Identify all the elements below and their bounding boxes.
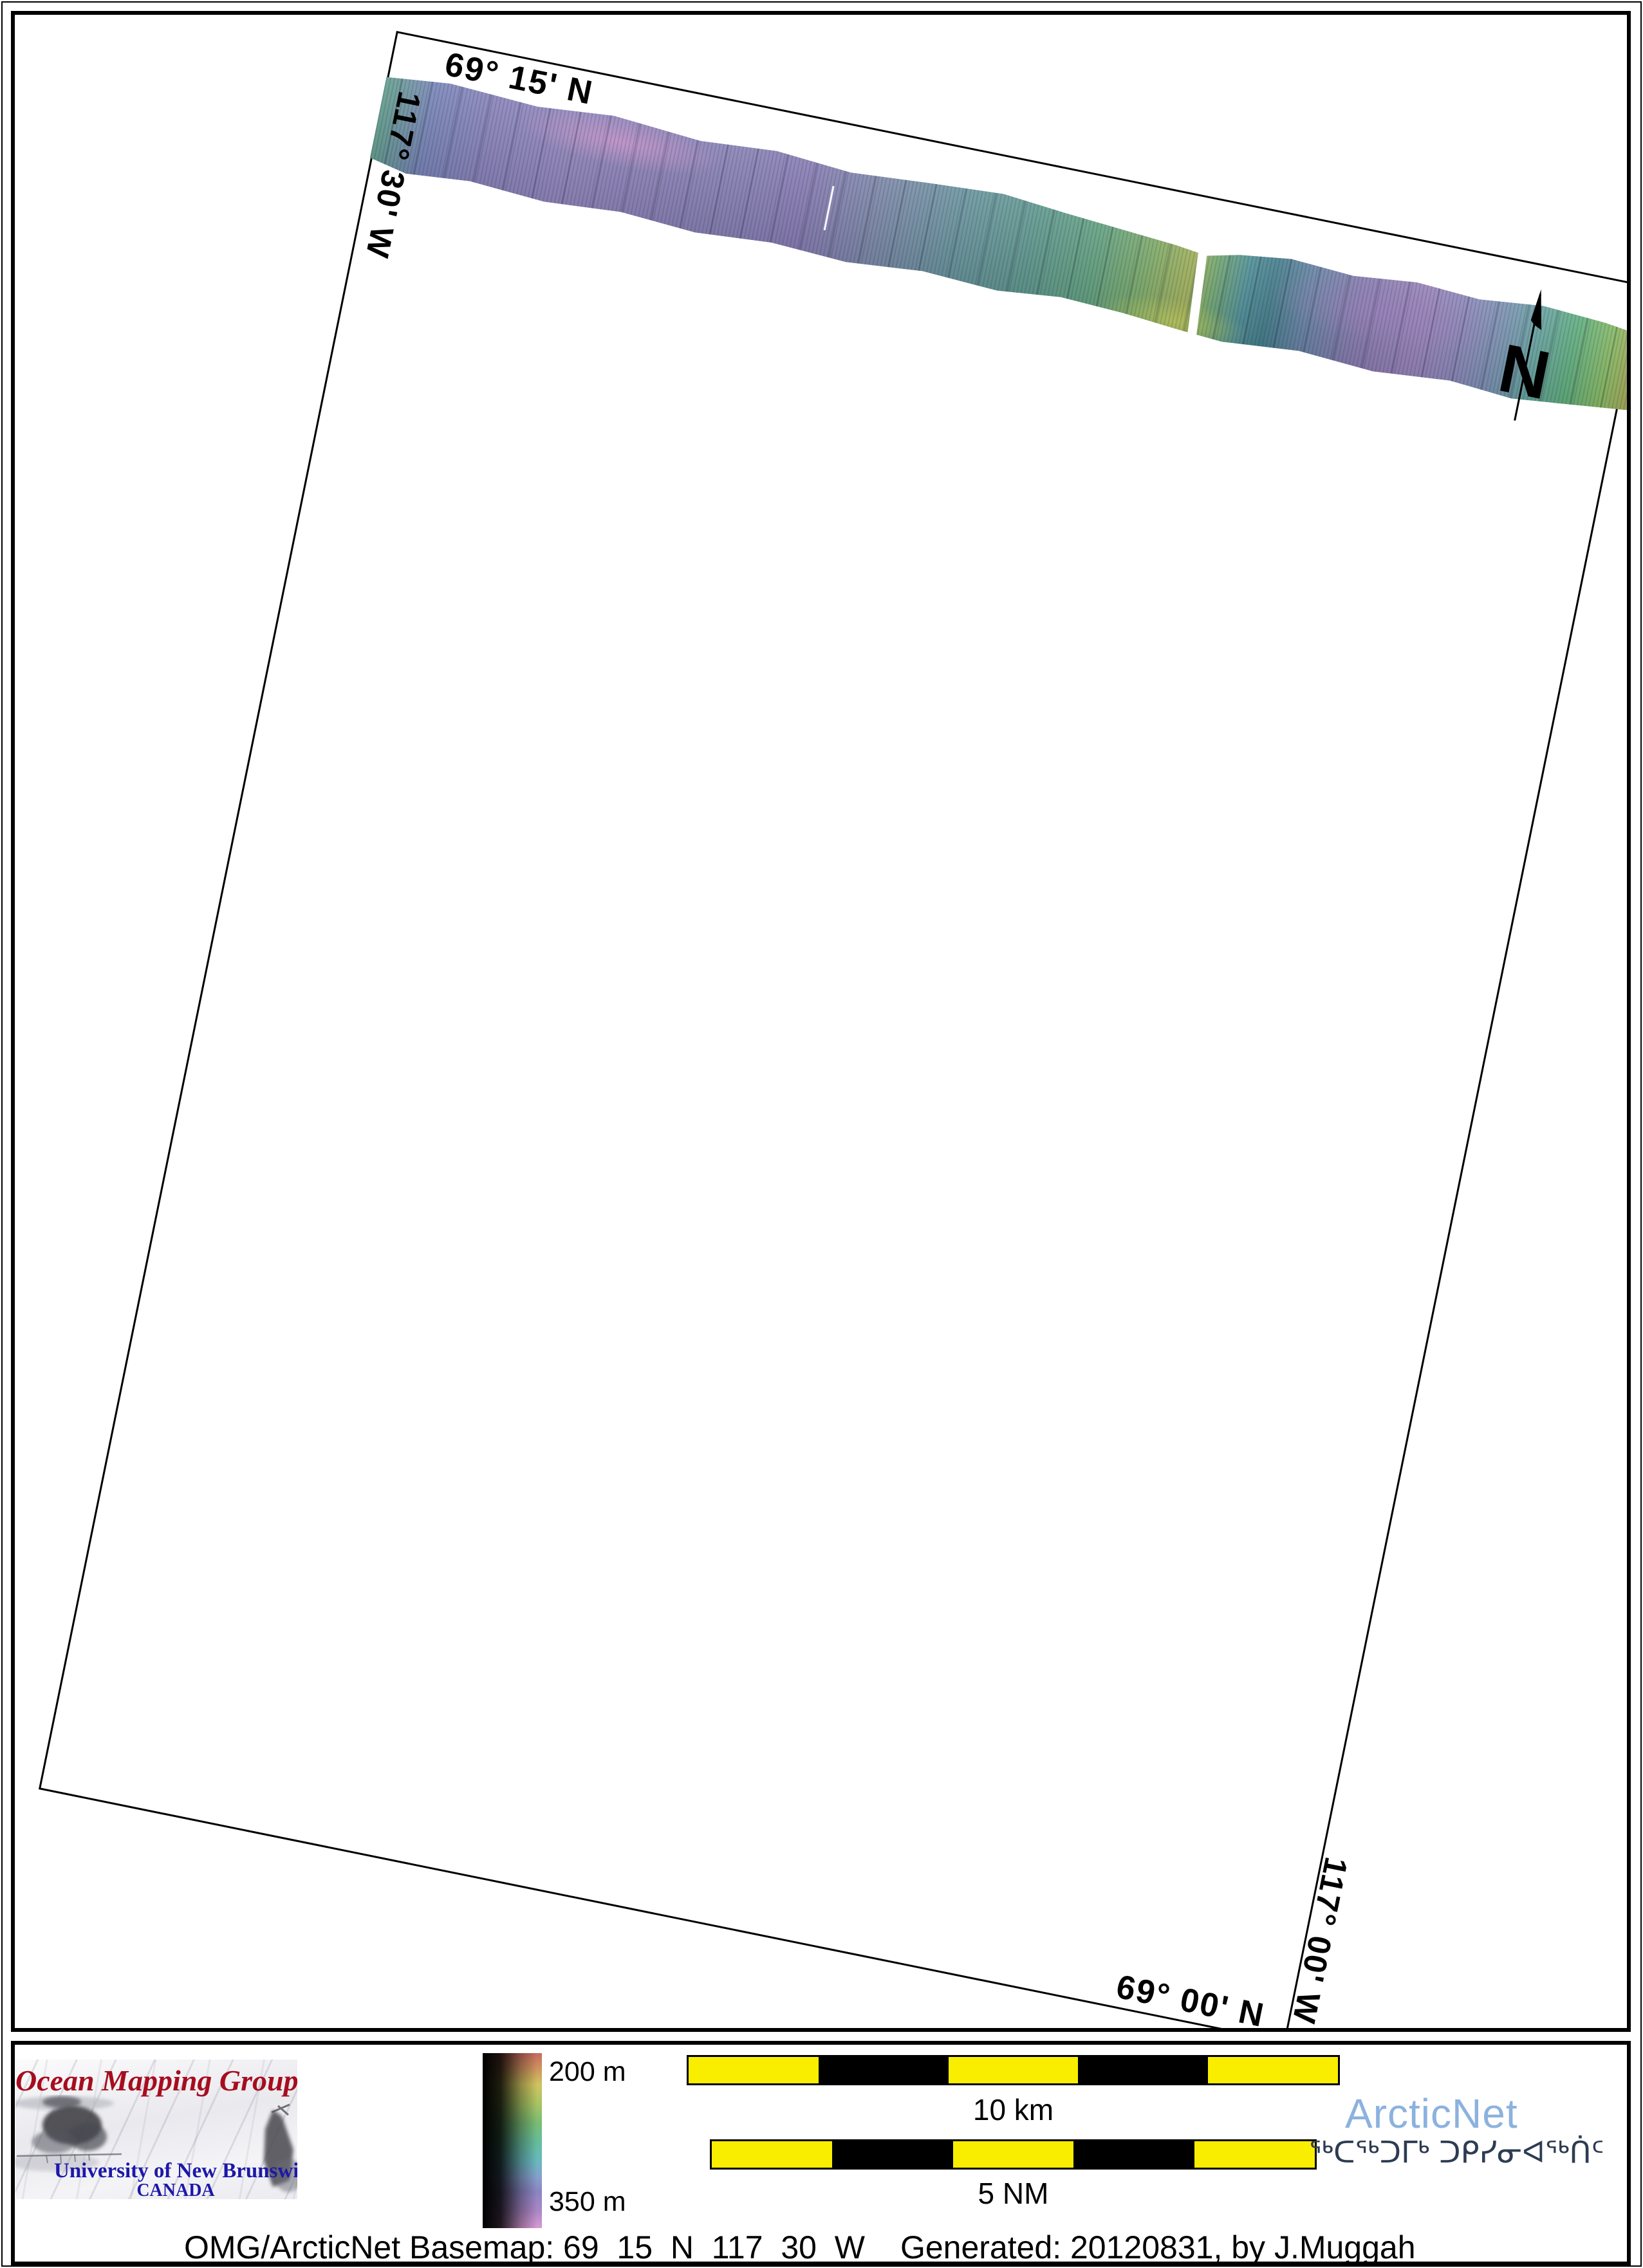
omg-country: CANADA (54, 2180, 297, 2199)
scalebar-segment (1208, 2057, 1338, 2083)
basemap-page: 69° 15' N 117° 30' W 69° 00' N 117° 00' … (0, 0, 1643, 2268)
generated-text: Generated: 20120831, by J.Muggah (900, 2229, 1416, 2265)
basemap-id-text: OMG/ArcticNet Basemap: 69_15_N_117_30_W (184, 2229, 865, 2265)
longitude-label-left: 117° 30' W (358, 88, 429, 261)
bathymetry-swath (367, 67, 1631, 426)
scalebar-nm (710, 2139, 1317, 2170)
omg-logo: Ocean Mapping Group University of New Br… (15, 2060, 297, 2199)
scalebar-segment (689, 2057, 819, 2083)
depth-colorbar (483, 2053, 542, 2228)
scalebar-segment (953, 2141, 1073, 2168)
map-frame: 69° 15' N 117° 30' W 69° 00' N 117° 00' … (39, 31, 1631, 2032)
scalebar-segment (1194, 2141, 1315, 2168)
longitude-label-right: 117° 00' W (1285, 1854, 1355, 2027)
colorbar-top-label: 200 m (549, 2056, 626, 2088)
scalebar-segment (1078, 2057, 1208, 2083)
arcticnet-syllabics: ᖅᑕᖅᑐᒥᒃ ᑐᑭᓯᓂᐊᖅᑏᑦ (1309, 2135, 1604, 2170)
arcticnet-logo: ArcticNet (1345, 2090, 1518, 2137)
colorbar-bottom-label: 350 m (549, 2186, 626, 2218)
scalebar-segment (819, 2057, 949, 2083)
omg-title: Ocean Mapping Group (15, 2063, 297, 2097)
scalebar-segment (832, 2141, 952, 2168)
footer-caption: OMG/ArcticNet Basemap: 69_15_N_117_30_WG… (184, 2229, 1416, 2266)
omg-university: University of New Brunswick (54, 2159, 297, 2183)
latitude-label-bottom: 69° 00' N (1113, 1968, 1268, 2032)
scalebar-km (687, 2055, 1340, 2085)
map-area: 69° 15' N 117° 30' W 69° 00' N 117° 00' … (11, 11, 1631, 2032)
scalebar-nm-label: 5 NM (710, 2176, 1317, 2211)
scalebar-segment (949, 2057, 1079, 2083)
scalebar-segment (1073, 2141, 1194, 2168)
scalebar-segment (712, 2141, 832, 2168)
scalebar-km-label: 10 km (687, 2092, 1340, 2127)
